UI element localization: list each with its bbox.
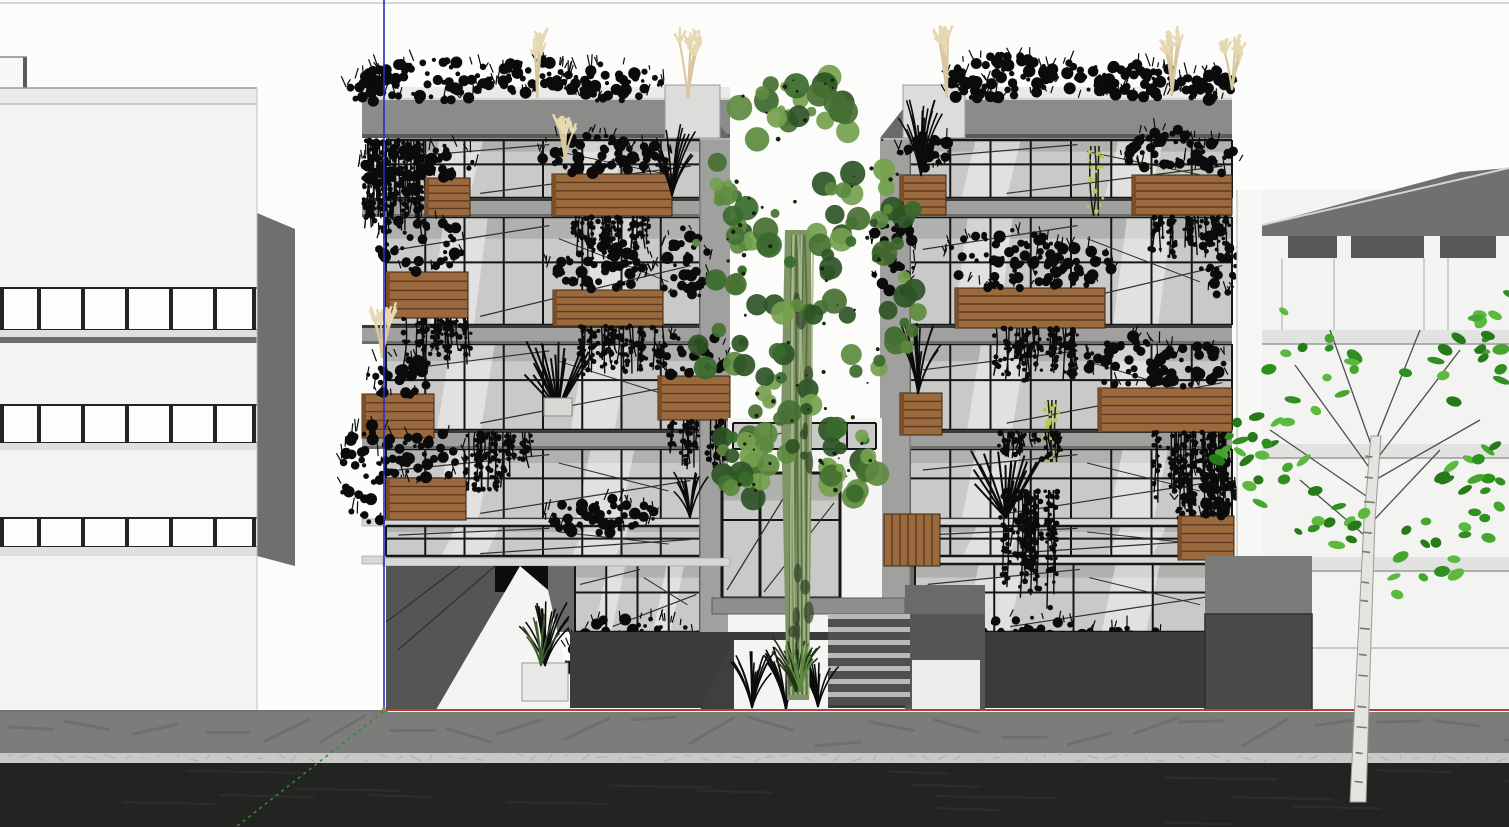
shadow-band [0,337,257,343]
window-mullion [37,405,41,443]
sill-band [0,330,257,337]
roof-box [0,57,27,88]
glass-mullion [1070,449,1072,519]
wood-planter [552,174,672,216]
model-viewport[interactable] [0,0,1509,827]
clerestory-pier [1424,236,1440,258]
glass-mullion [574,564,576,632]
glass-mullion [949,344,951,430]
window-mullion [169,288,173,330]
road [0,763,1509,827]
stair-riser [828,619,910,627]
stair-riser [828,697,910,705]
sill-band [0,547,257,556]
glass-mullion [990,140,992,198]
stair-tread [828,679,910,684]
window-mullion [125,288,129,330]
window-mullion [81,405,85,443]
window-mullion [125,518,129,547]
glass-mullion [1110,449,1112,519]
entrance-stairs [828,614,910,705]
wood-planter [386,478,466,520]
sill-band [0,443,257,450]
side-wall [257,213,295,566]
window-mullion [169,518,173,547]
wood-planter [658,376,730,420]
window-row [0,405,257,450]
glass-mullion [1231,217,1233,325]
glass-mullion [1151,526,1153,556]
wood-planter [955,288,1105,328]
stair-tread [828,614,910,619]
glass-mullion [1110,526,1112,556]
window-mullion [0,518,4,547]
clerestory-strip [1262,236,1509,258]
stair-riser [828,658,910,666]
stair-tread [828,666,910,671]
glass-mullion [1152,564,1154,632]
curb [0,753,1509,763]
window-mullion [252,405,256,443]
stair-tread [828,640,910,645]
stair-tread [828,653,910,658]
glass-mullion [542,526,544,556]
glass-floor [385,526,701,556]
glass-mullion [637,564,639,632]
sidewalk [0,712,1509,753]
floor-band [1262,330,1509,344]
window-mullion [213,405,217,443]
stair-riser [828,671,910,679]
glass-mullion [1151,449,1153,519]
wood-planter [1178,516,1234,560]
window-mullion [37,288,41,330]
wood-planter [553,290,663,326]
window-mullion [213,288,217,330]
glass-mullion [1070,140,1072,198]
stair-riser [828,684,910,692]
clerestory-pier [1262,236,1288,258]
clerestory-pier [1496,236,1509,258]
glass-mullion [990,526,992,556]
stair-riser [828,632,910,640]
facade [0,88,257,710]
parapet [0,88,257,104]
window-row [0,288,257,343]
wood-planter [900,393,942,435]
wood-planter [1132,175,1232,215]
stair-riser [828,645,910,653]
stair-tread [828,627,910,632]
window-row [0,518,257,556]
window-mullion [125,405,129,443]
glass-mullion [668,564,670,632]
window-mullion [37,518,41,547]
glass-mullion [949,526,951,556]
left-background-building [0,57,295,710]
glass-mullion [990,344,992,430]
window-mullion [81,288,85,330]
wood-planter [386,272,468,318]
window-mullion [0,405,4,443]
parapet-block [665,85,720,138]
stair-tread [828,692,910,697]
architectural-render [0,0,1509,827]
origin-point [382,707,386,711]
white-planter-cube [522,663,568,701]
window-mullion [81,518,85,547]
garden-wall [1205,614,1312,710]
white-path [912,660,980,710]
wood-screen [884,514,940,566]
garden-wall-upper [1205,556,1312,614]
glass-mullion [949,449,951,519]
right-wing [869,25,1246,671]
upper-landing [905,585,985,614]
wood-planter [1098,388,1232,432]
window-mullion [169,405,173,443]
window-mullion [0,288,4,330]
window-mullion [213,518,217,547]
glass-mullion [621,344,623,430]
wood-planter [425,178,470,216]
ground-slab-band [383,558,730,566]
window-mullion [252,518,256,547]
window-mullion [252,288,256,330]
glass-mullion [424,526,426,556]
glass-mullion [1110,140,1112,198]
glass-mullion [949,140,951,198]
glass-mullion [660,449,662,519]
glass-mullion [385,526,387,556]
street [0,711,1509,827]
glass-mullion [949,217,951,325]
glass-mullion [464,526,466,556]
glass-mullion [1070,526,1072,556]
floor-band [1262,444,1509,458]
clerestory-pier [1337,236,1351,258]
glass-mullion [542,217,544,325]
planter-vase [544,398,572,416]
